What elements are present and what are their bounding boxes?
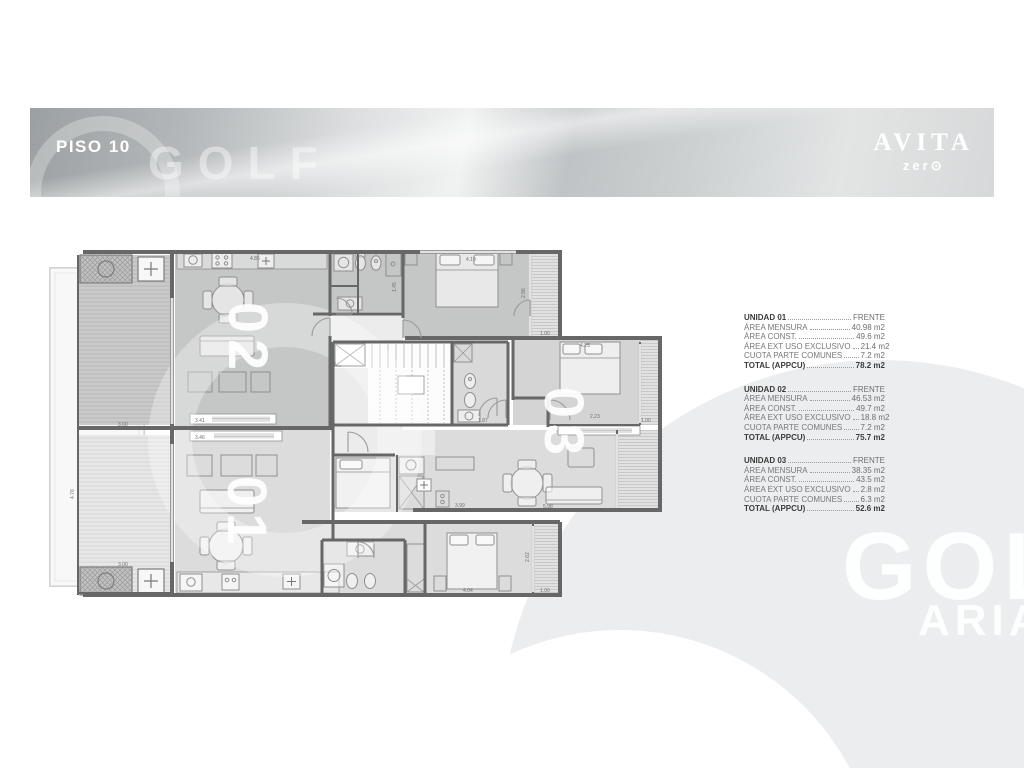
- dotted-leader: [807, 439, 853, 440]
- dim-label: 1.87: [478, 418, 488, 424]
- row-label: ÁREA EXT USO EXCLUSIVO: [744, 342, 851, 352]
- unit-03-label: 03: [533, 387, 596, 461]
- balcony-unit02: [530, 250, 562, 338]
- dim-label: 3.46: [195, 435, 205, 441]
- row-label: CUOTA PARTE COMUNES: [744, 495, 842, 505]
- dim-label: 5.98: [543, 504, 553, 510]
- row-value: 43.5 m2: [856, 475, 885, 485]
- unit-01-label: 01: [216, 476, 279, 550]
- dotted-leader: [788, 319, 851, 320]
- row-label: ÁREA EXT USO EXCLUSIVO: [744, 485, 851, 495]
- row-value: 21.4 m2: [861, 342, 890, 352]
- flyer-page: { "header": { "floor_label": "PISO 10", …: [0, 0, 1024, 768]
- dotted-leader: [799, 338, 854, 339]
- total-value: 78.2 m2: [856, 361, 885, 371]
- balcony-unit01: [533, 522, 562, 595]
- unit-info-panel: UNIDAD 01 FRENTE ÁREA MENSURA40.98 m2 ÁR…: [744, 313, 885, 528]
- unit-name: UNIDAD 01: [744, 313, 786, 323]
- row-value: 7.2 m2: [861, 423, 885, 433]
- unit-name: UNIDAD 03: [744, 456, 786, 466]
- row-label: ÁREA MENSURA: [744, 394, 808, 404]
- balcony-unit03: [617, 430, 662, 512]
- dotted-leader: [799, 410, 854, 411]
- dotted-leader: [810, 472, 850, 473]
- row-value: 38.35 m2: [852, 466, 885, 476]
- dim-label: 3.41: [195, 418, 205, 424]
- dim-label: 2.62: [525, 552, 531, 562]
- row-label: ÁREA CONST.: [744, 475, 797, 485]
- brand-name: AVITA: [874, 129, 975, 157]
- dotted-leader: [807, 367, 853, 368]
- row-label: CUOTA PARTE COMUNES: [744, 351, 842, 361]
- dotted-leader: [810, 400, 850, 401]
- row-label: ÁREA CONST.: [744, 404, 797, 414]
- unit-orientation: FRENTE: [853, 313, 885, 323]
- dim-label: 1.00: [540, 331, 550, 337]
- unit-02-label: 02: [217, 302, 280, 376]
- dim-label: 2.96: [521, 288, 527, 298]
- dim-label: 4.25: [580, 343, 590, 349]
- dim-label: 3.99: [455, 503, 465, 509]
- dim-label: 3.00: [118, 562, 128, 568]
- total-label: TOTAL (APPCU): [744, 361, 805, 371]
- total-value: 75.7 m2: [856, 433, 885, 443]
- dotted-leader: [810, 329, 850, 330]
- row-value: 6.3 m2: [861, 495, 885, 505]
- total-label: TOTAL (APPCU): [744, 504, 805, 514]
- unit-name: UNIDAD 02: [744, 385, 786, 395]
- dim-label: 1.00: [641, 418, 651, 424]
- dim-label: 3.00: [118, 422, 128, 428]
- dim-label: 1.00: [540, 588, 550, 594]
- unit-orientation: FRENTE: [853, 456, 885, 466]
- dotted-leader: [853, 348, 859, 349]
- dim-label: 2.23: [590, 414, 600, 420]
- dotted-leader: [799, 481, 854, 482]
- dim-label: 4.85: [250, 256, 260, 262]
- floor-title: PISO 10: [56, 137, 131, 157]
- dim-label: 4.76: [70, 489, 76, 499]
- row-value: 7.2 m2: [861, 351, 885, 361]
- row-label: ÁREA EXT USO EXCLUSIVO: [744, 413, 851, 423]
- dim-label: 1.45: [392, 282, 398, 292]
- brand-subname: zer⊙: [874, 158, 975, 174]
- row-label: ÁREA CONST.: [744, 332, 797, 342]
- dotted-leader: [788, 462, 851, 463]
- row-label: CUOTA PARTE COMUNES: [744, 423, 842, 433]
- avita-zero-logo: AVITA zer⊙: [874, 129, 975, 174]
- total-value: 52.6 m2: [856, 504, 885, 514]
- unit-03-details: UNIDAD 03 FRENTE ÁREA MENSURA38.35 m2 ÁR…: [744, 456, 885, 514]
- row-label: ÁREA MENSURA: [744, 323, 808, 333]
- row-value: 49.6 m2: [856, 332, 885, 342]
- dotted-leader: [807, 510, 853, 511]
- total-label: TOTAL (APPCU): [744, 433, 805, 443]
- row-value: 18.8 m2: [861, 413, 890, 423]
- row-value: 46.53 m2: [852, 394, 885, 404]
- golf-header-watermark: GOLF: [148, 136, 332, 190]
- row-label: ÁREA MENSURA: [744, 466, 808, 476]
- dotted-leader: [844, 357, 858, 358]
- dim-label: 4.19: [466, 257, 476, 263]
- header-banner: GOLF PISO 10 AVITA zer⊙: [30, 108, 994, 197]
- unit-02-details: UNIDAD 02 FRENTE ÁREA MENSURA46.53 m2 ÁR…: [744, 385, 885, 443]
- dotted-leader: [853, 419, 859, 420]
- unit-01-details: UNIDAD 01 FRENTE ÁREA MENSURA40.98 m2 ÁR…: [744, 313, 885, 371]
- dotted-leader: [844, 501, 858, 502]
- dotted-leader: [853, 491, 859, 492]
- row-value: 2.8 m2: [861, 485, 885, 495]
- dotted-leader: [844, 429, 858, 430]
- unit-orientation: FRENTE: [853, 385, 885, 395]
- row-value: 40.98 m2: [852, 323, 885, 333]
- dim-label: 4.04: [463, 588, 473, 594]
- row-value: 49.7 m2: [856, 404, 885, 414]
- dotted-leader: [788, 391, 851, 392]
